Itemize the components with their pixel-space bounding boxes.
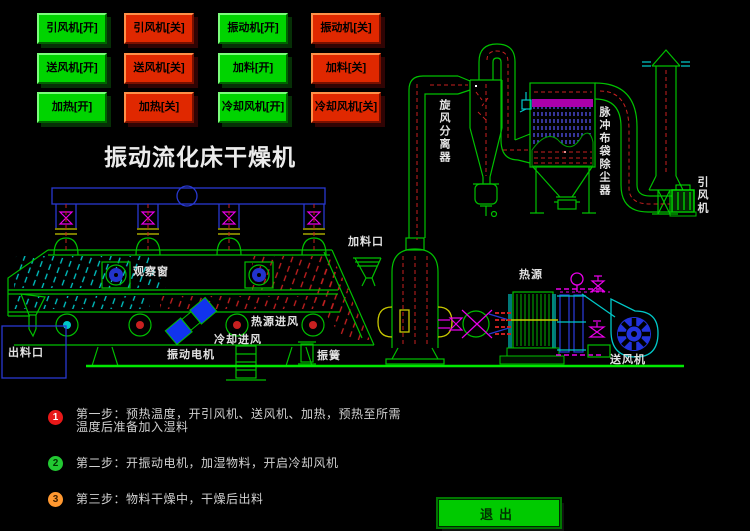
label-heat-air-inlet: 热源进风 — [251, 313, 299, 329]
induced-fan-symbol — [670, 185, 696, 216]
supply-fan-symbol — [611, 299, 658, 357]
step-2-badge: 2 — [48, 456, 63, 471]
page-title: 振动流化床干燥机 — [104, 138, 296, 172]
label-cooling-air-inlet: 冷却进风 — [214, 331, 262, 347]
button-supply-fan-off[interactable]: 送风机[关] — [124, 53, 194, 84]
step-1-line-2: 温度后准备加入湿料 — [76, 421, 401, 434]
label-bag-filter: 脉冲布袋除尘器 — [596, 106, 612, 197]
control-button-panel: 引风机[开] 引风机[关] 振动机[开] 振动机[关] 送风机[开] 送风机[关… — [37, 13, 382, 123]
scrubber-tower — [386, 238, 489, 364]
button-feed-on[interactable]: 加料[开] — [218, 53, 288, 84]
button-vibrator-on[interactable]: 振动机[开] — [218, 13, 288, 44]
label-supply-fan: 送风机 — [610, 351, 646, 367]
step-3-text: 第三步：物料干燥中，干燥后出料 — [76, 493, 264, 506]
step-1-text: 第一步：预热温度，开引风机、送风机、加热，预热至所需 温度后准备加入湿料 — [76, 408, 401, 434]
exit-button[interactable]: 退出 — [438, 499, 560, 527]
button-cooling-fan-on[interactable]: 冷却风机[开] — [218, 92, 288, 123]
label-discharge-outlet: 出料口 — [8, 344, 44, 360]
button-cooling-fan-off[interactable]: 冷却风机[关] — [311, 92, 381, 123]
button-induced-fan-on[interactable]: 引风机[开] — [37, 13, 107, 44]
button-heating-off[interactable]: 加热[关] — [124, 92, 194, 123]
manifold-flanges — [55, 229, 325, 234]
cyclone-separator — [470, 44, 530, 217]
step-1-badge: 1 — [48, 410, 63, 425]
label-heat-source: 热源 — [519, 266, 543, 282]
label-vibration-motor: 振动电机 — [167, 346, 215, 362]
button-vibrator-off[interactable]: 振动机[关] — [311, 13, 381, 44]
hmi-screen: 引风机[开] 引风机[关] 振动机[开] 振动机[关] 送风机[开] 送风机[关… — [0, 0, 750, 531]
hot-air-piping — [556, 273, 615, 357]
tower-exchanger-link — [438, 310, 511, 338]
step-2-text: 第二步：开振动电机，加湿物料，开启冷却风机 — [76, 457, 339, 470]
label-cyclone: 旋风分离器 — [436, 99, 452, 164]
step-3-badge: 3 — [48, 492, 63, 507]
label-vibration-spring: 振簧 — [317, 347, 341, 363]
button-induced-fan-off[interactable]: 引风机[关] — [124, 13, 194, 44]
button-supply-fan-on[interactable]: 送风机[开] — [37, 53, 107, 84]
label-observation-window: 观察窗 — [133, 263, 169, 279]
button-feed-off[interactable]: 加料[关] — [311, 53, 381, 84]
button-heating-on[interactable]: 加热[开] — [37, 92, 107, 123]
label-induced-fan: 引风机 — [694, 176, 710, 215]
label-feed-inlet: 加料口 — [348, 233, 384, 249]
manifold-valves — [60, 212, 320, 224]
